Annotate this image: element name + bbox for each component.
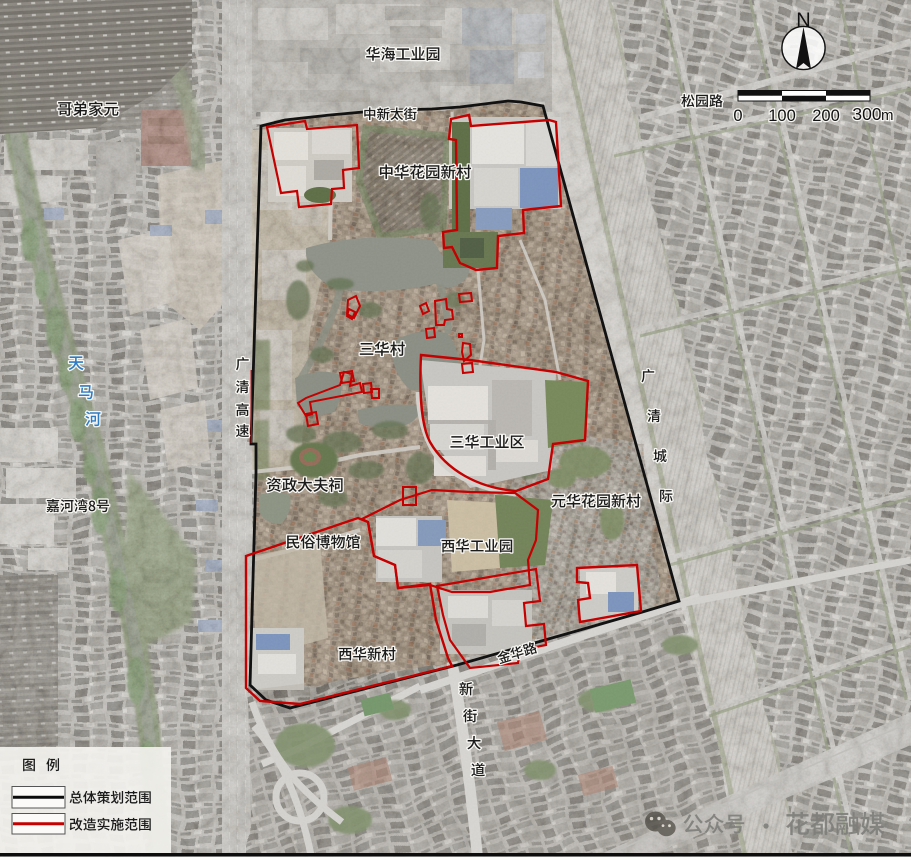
svg-text:300: 300 <box>852 104 881 124</box>
svg-text:N: N <box>796 10 810 32</box>
svg-text:200: 200 <box>812 107 840 125</box>
svg-text:100: 100 <box>768 107 796 125</box>
svg-text:m: m <box>881 107 894 124</box>
svg-text:0: 0 <box>733 107 742 125</box>
